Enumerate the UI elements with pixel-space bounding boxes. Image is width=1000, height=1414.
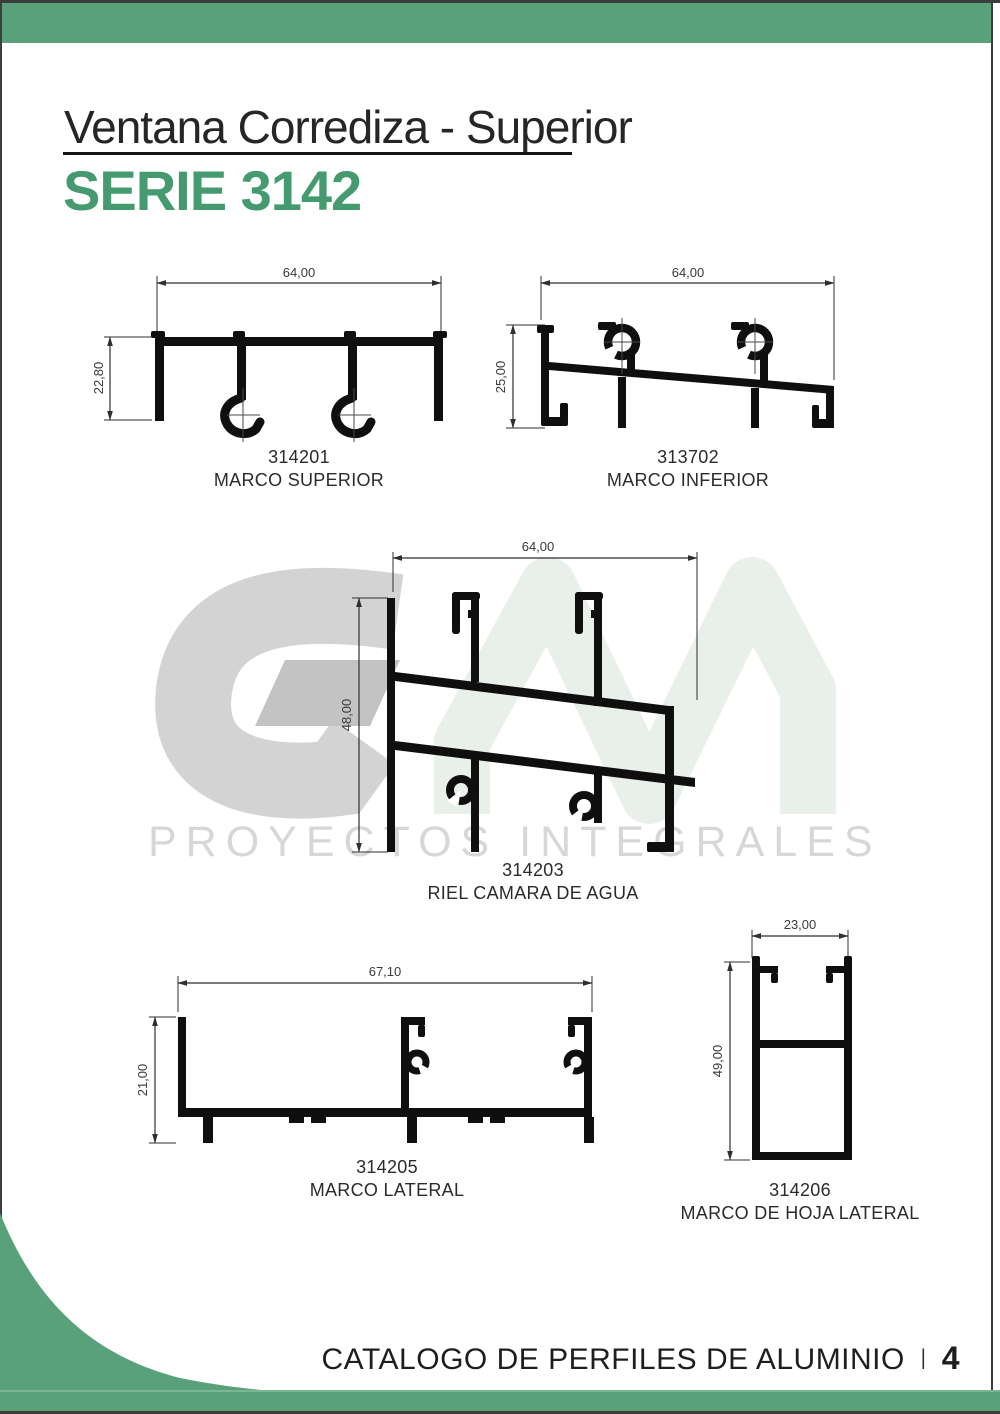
profile-drawing-314205: 67,10 21,00 [130, 955, 610, 1155]
dim-height: 48,00 [339, 699, 354, 732]
dim-height: 49,00 [710, 1045, 725, 1078]
profile-name: MARCO DE HOJA LATERAL [650, 1203, 950, 1224]
profile-name: RIEL CAMARA DE AGUA [383, 883, 683, 904]
footer-green-band [0, 1390, 1000, 1413]
dim-width: 64,00 [522, 539, 555, 554]
corner-swoosh [0, 1150, 600, 1414]
page-number: 4 [942, 1340, 960, 1376]
page-title: Ventana Corrediza - Superior [64, 100, 632, 154]
profile-code: 314201 [149, 447, 449, 468]
profile-drawing-314203: 64,00 48,00 [330, 535, 730, 907]
dim-width: 64,00 [672, 265, 705, 280]
profile-name: MARCO INFERIOR [538, 470, 838, 491]
profile-drawing-314201: 64,00 22,80 [60, 250, 470, 450]
series-title: SERIE 3142 [63, 158, 361, 223]
profile-code: 313702 [538, 447, 838, 468]
profile-code: 314206 [650, 1180, 950, 1201]
dim-height: 21,00 [135, 1064, 150, 1097]
profile-name: MARCO SUPERIOR [149, 470, 449, 491]
dim-height: 22,80 [91, 362, 106, 395]
dim-width: 64,00 [283, 265, 316, 280]
profile-code: 314203 [383, 860, 683, 881]
profile-drawing-313702: 64,00 25,00 [480, 250, 860, 450]
dim-height: 25,00 [493, 361, 508, 394]
footer-separator: I [921, 1343, 926, 1377]
dim-width: 23,00 [784, 917, 817, 932]
catalog-page: Ventana Corrediza - Superior SERIE 3142 … [0, 0, 1000, 1414]
header-green-band [2, 3, 993, 43]
dim-width: 67,10 [369, 964, 402, 979]
title-underline [63, 152, 572, 155]
